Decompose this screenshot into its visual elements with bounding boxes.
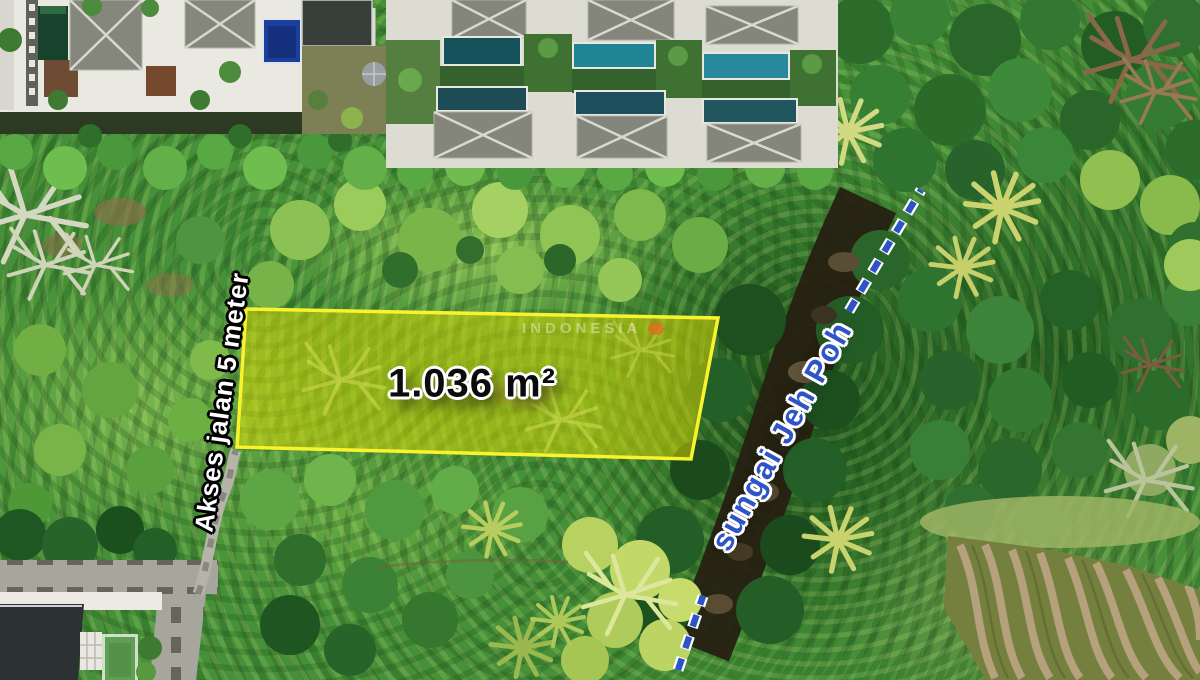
forest-canopy-center	[246, 179, 728, 309]
land-plot-polygon	[237, 309, 718, 459]
aerial-photo: INDONESIA Akses jalan 5 meter sungai Jeh…	[0, 0, 1200, 680]
aerial-scene	[0, 0, 1200, 680]
villa-bottom-left	[0, 592, 162, 680]
villa-complex	[386, 0, 838, 168]
scrub-left	[0, 165, 230, 527]
